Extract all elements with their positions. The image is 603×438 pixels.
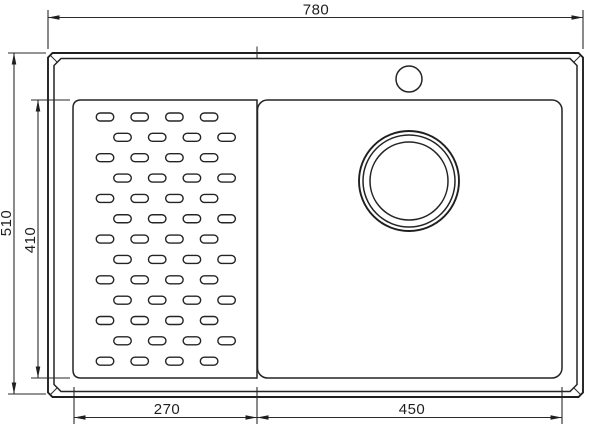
drainboard-slot <box>200 357 218 365</box>
dimension-bowl-width: 450 <box>257 387 562 424</box>
drainboard-slot <box>183 296 201 304</box>
drainboard-slot <box>166 357 184 365</box>
drawing-canvas: 780 510 410 270 450 <box>0 0 603 438</box>
drainboard-slot <box>218 296 236 304</box>
drainboard-slot <box>131 194 149 202</box>
drainboard-slot <box>166 154 184 162</box>
dimension-label-410: 410 <box>22 227 39 254</box>
drain-inner-circle <box>370 142 448 220</box>
drainboard-slot <box>200 113 218 121</box>
drainboard-slot <box>183 215 201 223</box>
drainboard-slot <box>183 255 201 263</box>
drainboard-slot <box>114 255 132 263</box>
sink-bowl <box>258 66 563 378</box>
drainboard-slot <box>200 276 218 284</box>
drainboard-slots <box>96 113 235 365</box>
drainboard-slot <box>96 113 114 121</box>
drainboard-slot <box>148 215 166 223</box>
drainboard-slot <box>131 154 149 162</box>
dimension-label-510: 510 <box>0 210 15 237</box>
drainboard-slot <box>218 133 236 141</box>
drainboard-slot <box>114 296 132 304</box>
drainboard-slot <box>96 317 114 325</box>
rim-corner-bevel-tl <box>51 56 58 63</box>
drainboard-slot <box>166 194 184 202</box>
dimension-inner-height: 410 <box>22 100 70 378</box>
drainboard-slot <box>96 194 114 202</box>
drainboard-slot <box>218 215 236 223</box>
drainboard-slot <box>148 255 166 263</box>
drainboard-slot <box>131 317 149 325</box>
drainboard-slot <box>96 276 114 284</box>
dimension-overall-width: 780 <box>48 2 583 50</box>
drainboard-slot <box>96 357 114 365</box>
drainboard-slot <box>166 317 184 325</box>
drainboard-slot <box>131 357 149 365</box>
rim-corner-bevel-tr <box>574 56 581 63</box>
drainboard-slot <box>200 194 218 202</box>
drainboard-slot <box>183 174 201 182</box>
dimension-overall-height: 510 <box>0 53 46 394</box>
drainboard-slot <box>114 133 132 141</box>
drainboard-slot <box>114 174 132 182</box>
dimension-label-450: 450 <box>399 401 426 418</box>
drainboard-slot <box>183 337 201 345</box>
drainboard-slot <box>218 174 236 182</box>
drainboard-slot <box>200 235 218 243</box>
rim-inner-edge <box>54 59 577 392</box>
drainboard-slot <box>148 296 166 304</box>
rim-corner-bevel-bl <box>51 388 58 395</box>
drainboard-slot <box>218 337 236 345</box>
dimension-drainboard-width: 270 <box>74 387 257 424</box>
faucet-hole <box>396 66 422 92</box>
drainboard-slot <box>96 154 114 162</box>
drainboard-slot <box>148 337 166 345</box>
drainboard-slot <box>148 133 166 141</box>
drainboard-slot <box>166 276 184 284</box>
drainboard-slot <box>114 215 132 223</box>
drainboard-slot <box>114 337 132 345</box>
sink-drawing: 780 510 410 270 450 <box>0 0 603 438</box>
drainboard-slot <box>131 113 149 121</box>
drainboard-slot <box>166 113 184 121</box>
drainboard <box>73 100 257 378</box>
dimension-label-780: 780 <box>303 2 330 19</box>
drain-hole <box>359 131 459 231</box>
drainboard-slot <box>131 276 149 284</box>
drainboard-slot <box>131 235 149 243</box>
drainboard-slot <box>200 154 218 162</box>
drainboard-slot <box>200 317 218 325</box>
drainboard-slot <box>166 235 184 243</box>
drainboard-slot <box>218 255 236 263</box>
drainboard-slot <box>148 174 166 182</box>
drain-mid-circle <box>363 135 455 227</box>
drainboard-slot <box>96 235 114 243</box>
rim-corner-bevel-br <box>574 388 581 395</box>
drain-outer-circle <box>359 131 459 231</box>
drainboard-slot <box>183 133 201 141</box>
dimension-label-270: 270 <box>154 401 181 418</box>
